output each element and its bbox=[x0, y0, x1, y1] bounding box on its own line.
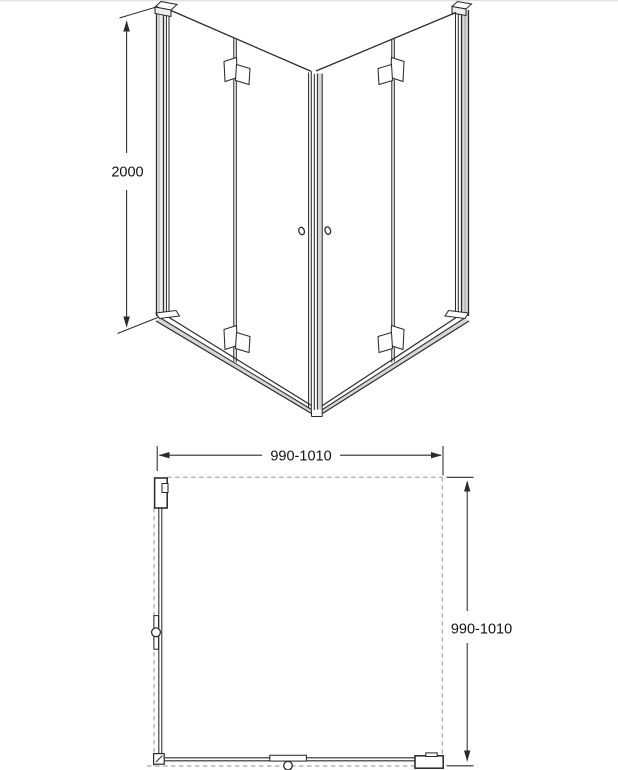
arrowhead-up bbox=[123, 21, 130, 32]
left-profile-body bbox=[157, 10, 164, 316]
extension-line-bottom bbox=[118, 317, 160, 334]
right-wall-profile bbox=[452, 2, 472, 317]
arrowhead-left bbox=[159, 452, 170, 458]
hinge-pivot bbox=[152, 628, 161, 637]
height-dimension-label: 2000 bbox=[111, 165, 143, 181]
arrowhead-down bbox=[123, 317, 130, 328]
center-corner-post bbox=[309, 72, 323, 410]
depth-dimension: 990-1010 bbox=[447, 477, 513, 766]
width-dimension: 990-1010 bbox=[157, 446, 443, 476]
extension-line-top bbox=[120, 7, 159, 19]
rail-line bbox=[164, 314, 312, 406]
front-view: 2000 bbox=[111, 2, 471, 417]
depth-dimension-label: 990-1010 bbox=[451, 622, 512, 638]
left-door-knob bbox=[298, 227, 306, 236]
left-wall-profile bbox=[155, 2, 177, 318]
hinge-pivot bbox=[284, 761, 293, 770]
wall-profile-clamp bbox=[426, 753, 437, 757]
hinge-bracket bbox=[270, 755, 307, 761]
left-top-edge bbox=[171, 11, 312, 72]
plan-view: 990-1010 990-1010 bbox=[147, 446, 512, 770]
right-door-knob bbox=[324, 226, 332, 235]
hinge-plate bbox=[236, 333, 251, 353]
left-fold-line bbox=[234, 38, 237, 362]
drawing-canvas: 2000 bbox=[0, 0, 618, 770]
bottom-hinge-plan bbox=[270, 755, 307, 770]
technical-drawing-svg: 2000 bbox=[0, 0, 618, 770]
arrowhead-right bbox=[431, 452, 442, 458]
wall-profile-clamp bbox=[162, 484, 168, 493]
width-dimension-label: 990-1010 bbox=[270, 449, 331, 465]
hinge-plate bbox=[378, 333, 393, 353]
arrowhead-up bbox=[464, 481, 470, 492]
right-fold-line bbox=[392, 39, 395, 363]
image-border-top bbox=[0, 0, 618, 1]
bottom-right-wall-profile-plan bbox=[415, 753, 443, 768]
wall-profile-rect bbox=[415, 756, 443, 768]
right-fold-top-hinge bbox=[378, 58, 404, 85]
arrowhead-down bbox=[464, 751, 470, 762]
corner-joint-plan bbox=[154, 754, 165, 765]
hinge-plate bbox=[236, 65, 251, 85]
left-fold-bottom-hinge bbox=[224, 326, 250, 353]
corner-post-foot bbox=[312, 410, 323, 417]
top-left-wall-profile-plan bbox=[155, 478, 168, 508]
right-fold-bottom-hinge bbox=[378, 326, 404, 353]
corner-post-shaded-face bbox=[317, 74, 322, 410]
hinge-plate bbox=[378, 65, 393, 85]
right-top-edge bbox=[316, 13, 456, 72]
left-fold-top-hinge bbox=[224, 58, 250, 85]
height-dimension: 2000 bbox=[111, 7, 159, 334]
